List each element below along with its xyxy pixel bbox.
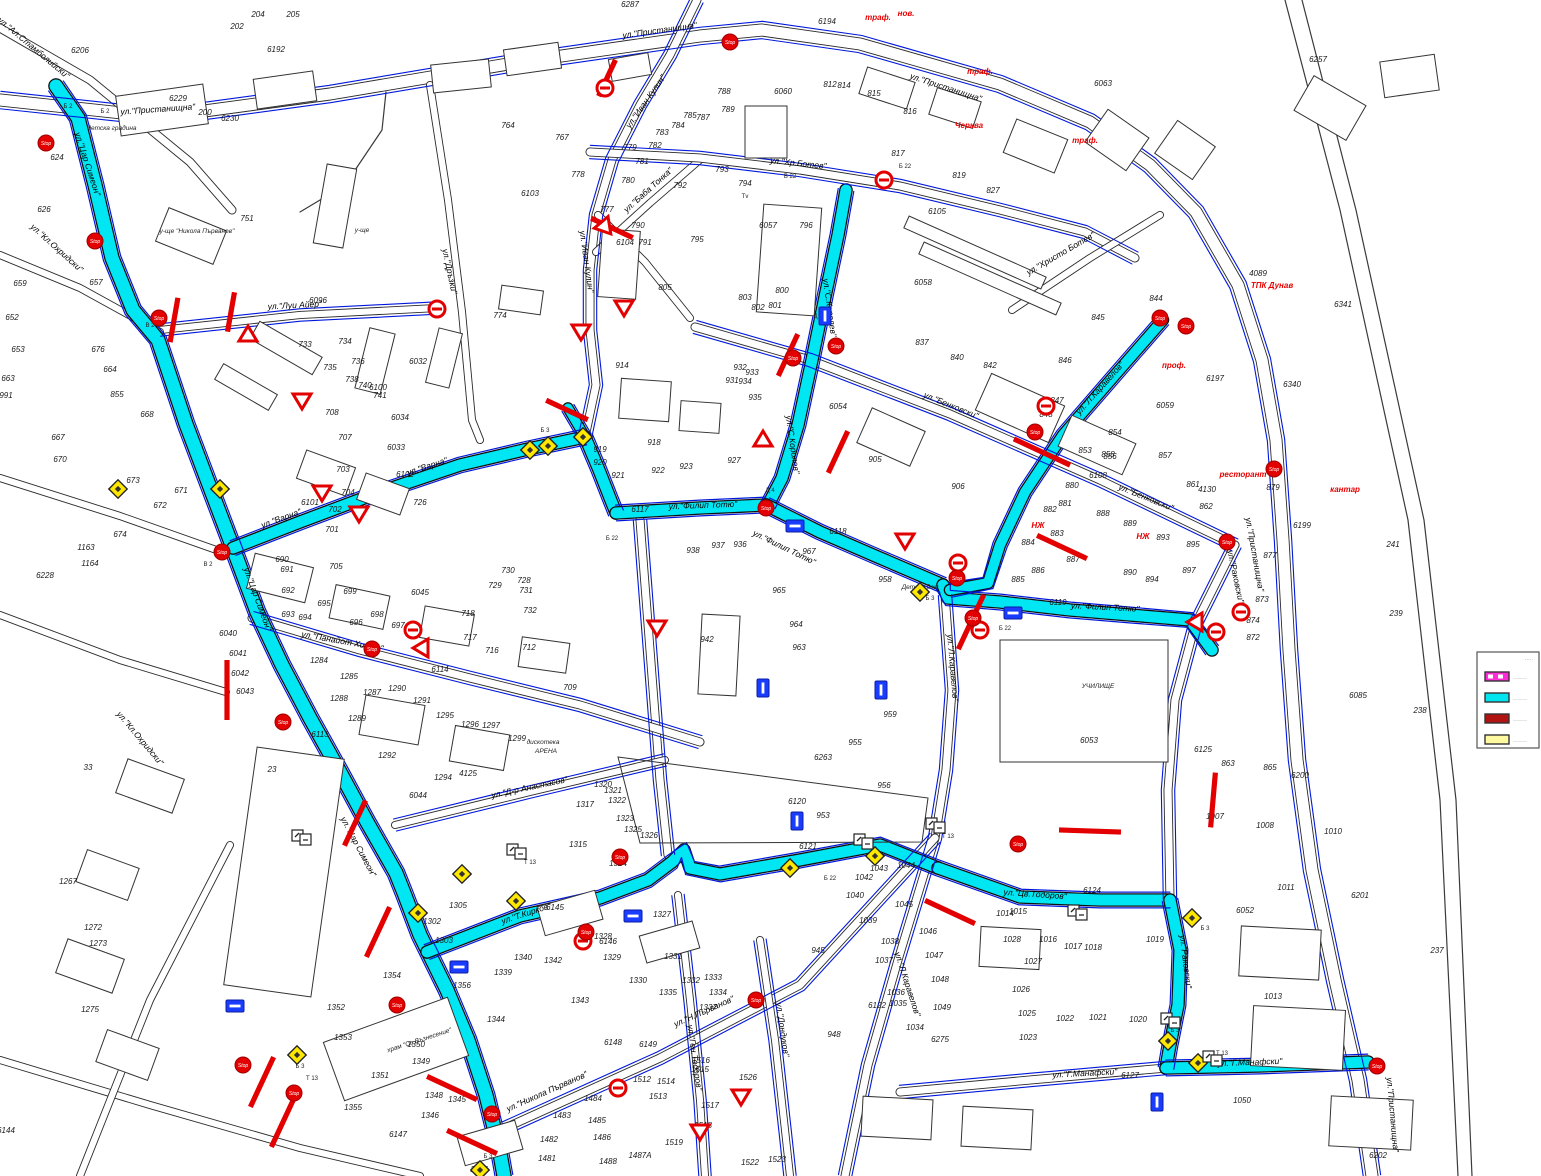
parcel-number: 6120 <box>788 797 806 806</box>
stop-sign-label: Stop <box>41 141 52 147</box>
parcel-number: 1022 <box>1056 1014 1074 1023</box>
street-name-label: ул."Иван Кулин" <box>623 72 668 131</box>
red-bar-marker <box>924 898 976 926</box>
parcel-number: 1037 <box>875 956 893 965</box>
blue-info-sign-icon <box>757 679 769 697</box>
parcel-number: 1016 <box>1039 935 1057 944</box>
red-bar-marker <box>1059 827 1121 834</box>
parcel-number: 1335 <box>659 988 677 997</box>
sign-code-label: Б 2 <box>64 104 74 110</box>
parcel-number: 1303 <box>435 936 453 945</box>
blue-info-sign-icon <box>1004 607 1022 619</box>
parcel-number: 702 <box>328 505 342 514</box>
building-footprint <box>449 725 509 770</box>
red-bar-marker <box>168 297 181 342</box>
building-footprint <box>76 850 139 901</box>
blue-info-sign-icon <box>875 681 887 699</box>
red-poi-label: нов. <box>898 9 915 18</box>
parcel-number: 1289 <box>348 714 366 723</box>
stop-sign-icon: Stop <box>722 34 738 50</box>
poi-label: у-ще <box>354 227 370 234</box>
parcel-number: 1343 <box>571 996 589 1005</box>
parcel-number: 653 <box>11 345 25 354</box>
parcel-number: 1036 <box>887 988 905 997</box>
stop-sign-icon: Stop <box>785 350 801 366</box>
info-sign-box-icon <box>507 844 526 859</box>
street-name-label: ул."Бенковски" <box>1116 481 1176 513</box>
parcel-number: 663 <box>1 374 15 383</box>
parcel-number: 1273 <box>89 939 107 948</box>
parcel-number: 4130 <box>1198 485 1216 494</box>
stop-sign-label: Stop <box>1269 467 1280 473</box>
parcel-number: 624 <box>50 153 64 162</box>
parcel-number: 626 <box>37 205 51 214</box>
parcel-number: 718 <box>461 609 475 618</box>
parcel-number: 1287 <box>363 688 381 697</box>
blue-info-sign-icon <box>819 307 831 325</box>
parcel-number: 787 <box>696 113 710 122</box>
parcel-number: 676 <box>91 345 105 354</box>
stop-sign-icon: Stop <box>286 1085 302 1101</box>
parcel-number: 6127 <box>1121 1071 1139 1080</box>
parcel-number: 877 <box>1263 551 1277 560</box>
parcel-number: 783 <box>655 128 669 137</box>
stop-sign-label: Stop <box>788 356 799 362</box>
parcel-number: 1482 <box>540 1135 558 1144</box>
no-entry-sign-icon <box>405 622 421 638</box>
sign-code-label: Б 22 <box>999 626 1012 632</box>
building-footprint <box>1380 54 1439 97</box>
no-entry-sign-icon <box>432 308 442 311</box>
stop-sign-label: Stop <box>751 998 762 1004</box>
parcel-number: 785 <box>683 111 697 120</box>
parcel-number: 732 <box>523 606 537 615</box>
parcel-number: 935 <box>748 393 762 402</box>
parcel-number: 1013 <box>1264 992 1282 1001</box>
parcel-number: 1294 <box>434 773 452 782</box>
parcel-number: 1042 <box>855 873 873 882</box>
red-poi-label: проф. <box>1162 361 1186 370</box>
stop-sign-label: Stop <box>392 1003 403 1009</box>
parcel-number: 733 <box>298 340 312 349</box>
no-entry-sign-icon <box>600 87 610 90</box>
parcel-number: 6060 <box>774 87 792 96</box>
parcel-number: 800 <box>775 286 789 295</box>
no-entry-sign-icon <box>610 1080 626 1096</box>
sign-code-label: Тv <box>742 194 749 200</box>
parcel-number: 1330 <box>629 976 647 985</box>
parcel-number: 784 <box>671 121 685 130</box>
parcel-number: 1356 <box>453 981 471 990</box>
parcel-number: 730 <box>501 566 515 575</box>
parcel-number: 906 <box>951 482 965 491</box>
priority-road-sign-icon <box>288 1046 306 1064</box>
parcel-number: 922 <box>651 466 665 475</box>
legend-note: ····· <box>1525 657 1534 663</box>
parcel-number: 657 <box>89 278 103 287</box>
parcel-number: 6085 <box>1349 691 1367 700</box>
no-entry-sign-icon <box>950 555 966 571</box>
parcel-number: 842 <box>983 361 997 370</box>
legend-item-label: ······· <box>1513 697 1527 703</box>
parcel-number: 690 <box>275 555 289 564</box>
map-viewport[interactable]: 2002022042056206619262306229751624626659… <box>0 0 1541 1176</box>
parcel-number: 1317 <box>576 800 594 809</box>
parcel-number: 845 <box>1091 313 1105 322</box>
parcel-number: 691 <box>280 565 293 574</box>
parcel-number: 861 <box>1186 480 1199 489</box>
parcel-number: 1346 <box>421 1111 439 1120</box>
parcel-number: 1522 <box>741 1158 759 1167</box>
parcel-number: 6032 <box>409 357 427 366</box>
building-footprint <box>857 408 925 466</box>
no-entry-sign-icon <box>1038 398 1054 414</box>
red-poi-label: траф. <box>1072 136 1098 145</box>
no-entry-sign-icon <box>876 172 892 188</box>
sign-code-label: Б 22 <box>899 164 912 170</box>
parcel-number: 956 <box>877 781 891 790</box>
parcel-number: 6200 <box>1291 771 1309 780</box>
parcel-number: 1164 <box>81 559 99 568</box>
parcel-number: 734 <box>338 337 352 346</box>
parcel-number: 893 <box>1156 533 1170 542</box>
parcel-number: 792 <box>673 181 687 190</box>
parcel-number: 948 <box>827 1030 841 1039</box>
parcel-number: 897 <box>1182 566 1196 575</box>
stop-sign-label: Stop <box>1013 842 1024 848</box>
parcel-number: 1027 <box>1024 957 1042 966</box>
stop-sign-icon: Stop <box>1219 534 1235 550</box>
parcel-number: 6228 <box>36 571 54 580</box>
street-name-label: ул."Л.Каравелов" <box>1073 359 1127 417</box>
parcel-number: 709 <box>563 683 577 692</box>
parcel-number: 1267 <box>59 877 77 886</box>
blue-info-sign-icon <box>824 311 827 322</box>
parcel-number: 855 <box>110 390 124 399</box>
parcel-number: 6148 <box>604 1038 622 1047</box>
parcel-number: 6044 <box>409 791 427 800</box>
parcel-number: 1523 <box>768 1155 786 1164</box>
parcel-number: 6124 <box>1083 886 1101 895</box>
blue-info-sign-icon <box>790 525 801 528</box>
parcel-number: 879 <box>1266 483 1280 492</box>
parcel-number: 1514 <box>657 1077 675 1086</box>
parcel-number: 880 <box>1065 481 1079 490</box>
parcel-number: 854 <box>1108 428 1122 437</box>
stop-sign-label: Stop <box>1222 540 1233 546</box>
parcel-number: 6121 <box>799 842 817 851</box>
parcel-number: 6059 <box>1156 401 1174 410</box>
parcel-number: 6101 <box>301 498 319 507</box>
parcel-number: 790 <box>631 221 645 230</box>
parcel-number: 6197 <box>1206 374 1224 383</box>
parcel-number: 953 <box>816 811 830 820</box>
parcel-number: 837 <box>915 338 929 347</box>
sign-code-label: Т 13 <box>524 860 537 866</box>
parcel-number: 1291 <box>413 696 431 705</box>
legend-item-label: ······· <box>1513 718 1527 724</box>
blue-info-sign-icon <box>1156 1097 1159 1108</box>
parcel-number: 1026 <box>1012 985 1030 994</box>
parcel-number: 6063 <box>1094 79 1112 88</box>
street-name-label: ул."Г.Манафски" <box>1051 1066 1118 1079</box>
blue-info-sign-icon <box>226 1000 244 1012</box>
parcel-number: 664 <box>103 365 117 374</box>
parcel-number: 1028 <box>1003 935 1021 944</box>
street-name-label: ул."Луи Айер" <box>266 299 323 312</box>
parcel-number: 1352 <box>327 1003 345 1012</box>
blue-utility-line <box>0 39 1363 1176</box>
parcel-number: 6341 <box>1334 300 1352 309</box>
parcel-number: 858 <box>1101 450 1115 459</box>
stop-sign-label: Stop <box>581 930 592 936</box>
parcel-number: 6119 <box>1049 598 1067 607</box>
poi-label: у-ще "Никола Първанов" <box>159 228 235 235</box>
parcel-number: 883 <box>1050 529 1064 538</box>
poi-label: детска градина <box>87 124 136 132</box>
parcel-number: 816 <box>903 107 917 116</box>
legend: ································· <box>1477 652 1539 748</box>
sign-code-label: Т 13 <box>306 1076 319 1082</box>
parcel-number: 955 <box>848 738 862 747</box>
red-poi-label: НЖ <box>1031 521 1045 530</box>
sign-code-label: В 2 <box>203 562 213 568</box>
parcel-number: 1344 <box>487 1015 505 1024</box>
parcel-number: 945 <box>811 946 825 955</box>
stop-sign-icon: Stop <box>965 610 981 626</box>
blue-utility-line <box>236 445 587 556</box>
building-footprint <box>861 1096 933 1140</box>
street-name-label: ул."Раковски" <box>1225 548 1246 605</box>
parcel-number: 1034 <box>906 1023 924 1032</box>
parcel-number: 6040 <box>219 629 237 638</box>
sign-code-label: Д 4 <box>765 488 775 494</box>
parcel-number: 1519 <box>665 1138 683 1147</box>
parcel-number: 237 <box>1429 946 1444 955</box>
parcel-number: 1326 <box>640 831 658 840</box>
parcel-number: 6045 <box>411 588 429 597</box>
no-entry-sign-icon <box>408 629 418 632</box>
parcel-number: 905 <box>868 455 882 464</box>
stop-sign-icon: Stop <box>949 570 965 586</box>
parcel-number: 735 <box>323 363 337 372</box>
parcel-number: 873 <box>1255 595 1269 604</box>
parcel-number: 1047 <box>925 951 943 960</box>
parcel-number: 1025 <box>1018 1009 1036 1018</box>
parcel-number: 1290 <box>388 684 406 693</box>
stop-sign-label: Stop <box>1155 316 1166 322</box>
building-footprint <box>313 164 356 248</box>
parcel-number: 6287 <box>621 0 639 9</box>
parcel-number: 894 <box>1145 575 1159 584</box>
parcel-number: 888 <box>1096 509 1110 518</box>
parcel-number: 815 <box>867 89 881 98</box>
stop-sign-icon: Stop <box>1369 1058 1385 1074</box>
red-bar-marker <box>225 292 237 332</box>
stop-sign-icon: Stop <box>748 992 764 1008</box>
parcel-number: 1019 <box>1146 935 1164 944</box>
stop-sign-label: Stop <box>487 1112 498 1118</box>
building-footprint <box>156 208 227 265</box>
parcel-number: 863 <box>1221 759 1235 768</box>
parcel-number: 205 <box>285 10 300 19</box>
blue-info-sign-icon <box>1008 612 1019 615</box>
parcel-number: 6192 <box>267 45 285 54</box>
stop-sign-label: Stop <box>367 647 378 653</box>
parcel-number: 1354 <box>383 971 401 980</box>
parcel-number: 991 <box>0 391 13 400</box>
parcel-number: 751 <box>240 214 253 223</box>
parcel-number: 1048 <box>931 975 949 984</box>
parcel-number: 923 <box>679 462 693 471</box>
road-casing <box>0 30 1372 1176</box>
parcel-number: 1046 <box>919 927 937 936</box>
parcel-number: 6113 <box>311 730 329 739</box>
stop-sign-icon: Stop <box>214 544 230 560</box>
parcel-number: 1355 <box>344 1103 362 1112</box>
parcel-number: 671 <box>174 486 187 495</box>
parcel-number: 803 <box>738 293 752 302</box>
parcel-number: 705 <box>329 562 343 571</box>
parcel-number: 6100 <box>369 383 387 392</box>
no-entry-sign-icon <box>1208 624 1224 640</box>
parcel-number: 885 <box>1011 575 1025 584</box>
parcel-number: 704 <box>341 488 355 497</box>
no-entry-sign-icon <box>613 1087 623 1090</box>
parcel-number: 853 <box>1078 446 1092 455</box>
legend-swatch <box>1485 714 1509 723</box>
parcel-number: 6053 <box>1080 736 1098 745</box>
parcel-number: 764 <box>501 121 515 130</box>
stop-sign-label: Stop <box>90 239 101 245</box>
legend-swatch-stripe <box>1498 675 1503 679</box>
parcel-number: 6147 <box>389 1130 407 1139</box>
parcel-number: 241 <box>1385 540 1399 549</box>
parcel-number: 6144 <box>0 1126 15 1135</box>
sign-code-label: Т 13 <box>942 834 955 840</box>
parcel-number: 1011 <box>1277 883 1294 892</box>
parcel-number: 6034 <box>391 413 409 422</box>
parcel-number: 882 <box>1043 505 1057 514</box>
parcel-number: 1284 <box>310 656 328 665</box>
stop-sign-icon: Stop <box>235 1057 251 1073</box>
parcel-number: 1302 <box>423 917 441 926</box>
red-bar-marker <box>224 660 229 720</box>
street-name-label: ул."Ал.Стамболийски" <box>0 14 73 81</box>
stop-sign-label: Stop <box>761 506 772 512</box>
parcel-number: 717 <box>463 633 477 642</box>
parcel-number: 827 <box>986 186 1000 195</box>
parcel-number: 6117 <box>631 505 649 514</box>
parcel-number: 1331 <box>664 952 682 961</box>
parcel-number: 1342 <box>544 956 562 965</box>
parcel-number: 6122 <box>868 1001 886 1010</box>
parcel-number: 659 <box>13 279 27 288</box>
parcel-number: 936 <box>733 540 747 549</box>
poi-label: УЧИЛИЩЕ <box>1081 683 1115 690</box>
parcel-number: 802 <box>751 303 765 312</box>
blue-info-sign-icon <box>628 915 639 918</box>
parcel-number: 857 <box>1158 451 1172 460</box>
parcel-number: 1517 <box>701 1101 719 1110</box>
yield-sign-icon <box>615 301 633 316</box>
parcel-number: 238 <box>1412 706 1427 715</box>
parcel-number: 741 <box>373 391 386 400</box>
sign-code-label: Б 3 <box>484 1154 494 1160</box>
parcel-number: 921 <box>611 471 624 480</box>
parcel-number: 6033 <box>387 443 405 452</box>
parcel-number: 890 <box>1123 568 1137 577</box>
legend-item-label: ······· <box>1513 739 1527 745</box>
parcel-number: 819 <box>952 171 966 180</box>
parcel-number: 6103 <box>521 189 539 198</box>
parcel-number: 918 <box>647 438 661 447</box>
no-entry-sign-icon <box>879 179 889 182</box>
parcel-number: 697 <box>391 621 405 630</box>
stop-sign-label: Stop <box>952 576 963 582</box>
parcel-number: 1513 <box>649 1092 667 1101</box>
parcel-number: 1481 <box>538 1154 556 1163</box>
blue-info-sign-icon <box>454 966 465 969</box>
parcel-number: 1345 <box>448 1095 466 1104</box>
no-entry-sign-icon <box>975 629 985 632</box>
parcel-number: 1315 <box>569 840 587 849</box>
parcel-number: 695 <box>317 599 331 608</box>
parcel-number: 738 <box>345 375 359 384</box>
parcel-number: 736 <box>351 357 365 366</box>
building-footprint <box>215 364 278 411</box>
parcel-number: 701 <box>325 525 338 534</box>
legend-swatch <box>1485 735 1509 744</box>
no-entry-sign-icon <box>597 80 613 96</box>
parcel-number: 6041 <box>229 649 247 658</box>
blue-utility-line <box>770 498 947 578</box>
parcel-number: 670 <box>53 455 67 464</box>
city-map-canvas[interactable]: 2002022042056206619262306229751624626659… <box>0 0 1541 1176</box>
stop-sign-icon: Stop <box>1266 461 1282 477</box>
blue-info-sign-icon <box>450 961 468 973</box>
parcel-number: 814 <box>837 81 851 90</box>
parcel-number: 1008 <box>1256 821 1274 830</box>
parcel-number: 1295 <box>436 711 454 720</box>
red-poi-label: Черква <box>955 121 984 130</box>
building-footprint <box>426 328 463 388</box>
priority-road-sign-icon <box>1183 909 1201 927</box>
priority-road-sign-icon <box>109 480 127 498</box>
red-bar-marker <box>545 398 589 422</box>
parcel-number: 693 <box>281 610 295 619</box>
stop-sign-label: Stop <box>1181 324 1192 330</box>
parcel-number: 872 <box>1246 633 1260 642</box>
parcel-number: 1299 <box>508 734 526 743</box>
parcel-number: 1038 <box>881 937 899 946</box>
parcel-number: 667 <box>51 433 65 442</box>
parcel-number: 1020 <box>1129 1015 1147 1024</box>
parcel-number: 1353 <box>334 1033 352 1042</box>
sign-code-label: Б 2 <box>101 109 111 115</box>
parcel-number: 6194 <box>818 17 836 26</box>
parcel-number: 204 <box>250 10 265 19</box>
building-footprint <box>431 59 492 93</box>
parcel-number: 728 <box>517 576 531 585</box>
parcel-number: 920 <box>593 458 607 467</box>
stop-sign-icon: Stop <box>1152 310 1168 326</box>
poi-label: АРЕНА <box>534 748 557 755</box>
parcel-number: 202 <box>229 22 244 31</box>
stop-sign-icon: Stop <box>1027 424 1043 440</box>
legend-swatch <box>1485 693 1509 702</box>
parcel-number: 1288 <box>330 694 348 703</box>
